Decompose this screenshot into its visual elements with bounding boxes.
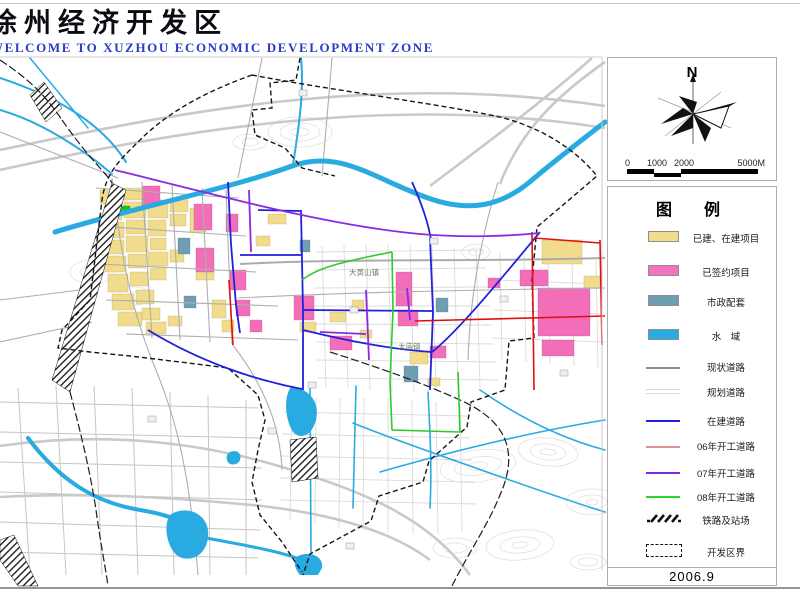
header: 徐州经济开发区 WELCOME TO XUZHOU ECONOMIC DEVEL…	[0, 8, 434, 56]
scale-tick: 2000	[674, 158, 694, 168]
town-label-dahuangshan: 大黄山镇	[349, 267, 379, 277]
scale-tick: 1000	[647, 158, 667, 168]
map-date: 2006.9	[608, 567, 776, 585]
legend-label: 已签约项目	[680, 265, 772, 279]
legend-item-road-2007: 07年开工道路	[608, 464, 776, 482]
legend-item-built: 已建、在建项目	[608, 229, 776, 247]
legend-item-under-construction-road: 在建道路	[608, 412, 776, 430]
legend-item-zone-boundary: 开发区界	[608, 541, 776, 561]
legend-label: 06年开工道路	[680, 439, 772, 453]
scale-tick: 0	[625, 158, 630, 168]
north-scale-panel: N 0 1000 2000 5000M	[607, 57, 777, 181]
legend-item-railway: 铁路及站场	[608, 511, 776, 529]
legend-label: 在建道路	[680, 414, 772, 428]
town-label-damiao: 大庙镇	[398, 341, 421, 351]
scale-tick: 5000M	[737, 158, 765, 168]
planned-road-line	[646, 389, 680, 394]
legend-panel: 图 例 已建、在建项目 已签约项目 市政配套 水 域 现状道路 规划道路 在建道…	[607, 186, 777, 586]
planned-roads-layer	[280, 244, 604, 534]
page-subtitle: WELCOME TO XUZHOU ECONOMIC DEVELOPMENT Z…	[0, 40, 434, 56]
legend-title: 图 例	[608, 196, 776, 220]
legend-label: 开发区界	[680, 545, 772, 559]
road-2007-line	[646, 472, 680, 474]
legend-label: 水 域	[680, 329, 772, 343]
legend-item-road-2006: 06年开工道路	[608, 437, 776, 455]
scale-bar-graphic	[627, 169, 758, 177]
road-2008-line	[646, 496, 680, 498]
legend-item-signed: 已签约项目	[608, 263, 776, 281]
page-title: 徐州经济开发区	[0, 8, 434, 39]
zone-boundary-symbol	[646, 544, 682, 557]
legend-label: 现状道路	[680, 360, 772, 374]
legend-label: 规划道路	[680, 385, 772, 399]
legend-label: 07年开工道路	[680, 466, 772, 480]
legend-item-planned-road: 规划道路	[608, 383, 776, 401]
legend-item-municipal: 市政配套	[608, 293, 776, 311]
built-swatch	[648, 231, 679, 242]
legend-label: 08年开工道路	[680, 490, 772, 504]
compass-rose-icon	[643, 72, 743, 156]
water-swatch	[648, 329, 679, 340]
municipal-swatch	[648, 295, 679, 306]
road-2006-line	[646, 446, 680, 448]
legend-item-road-2008: 08年开工道路	[608, 488, 776, 506]
scale-bar: 0 1000 2000 5000M	[627, 158, 761, 178]
under-construction-road-line	[646, 420, 680, 422]
city-grid-layer	[0, 386, 262, 575]
legend-label: 市政配套	[680, 295, 772, 309]
legend-item-existing-road: 现状道路	[608, 358, 776, 376]
signed-swatch	[648, 265, 679, 276]
legend-label: 铁路及站场	[680, 513, 772, 527]
legend-item-water: 水 域	[608, 327, 776, 345]
railway-symbol-icon	[646, 512, 682, 526]
legend-label: 已建、在建项目	[680, 231, 772, 245]
existing-road-line	[646, 367, 680, 369]
road-badges-layer	[148, 90, 568, 549]
